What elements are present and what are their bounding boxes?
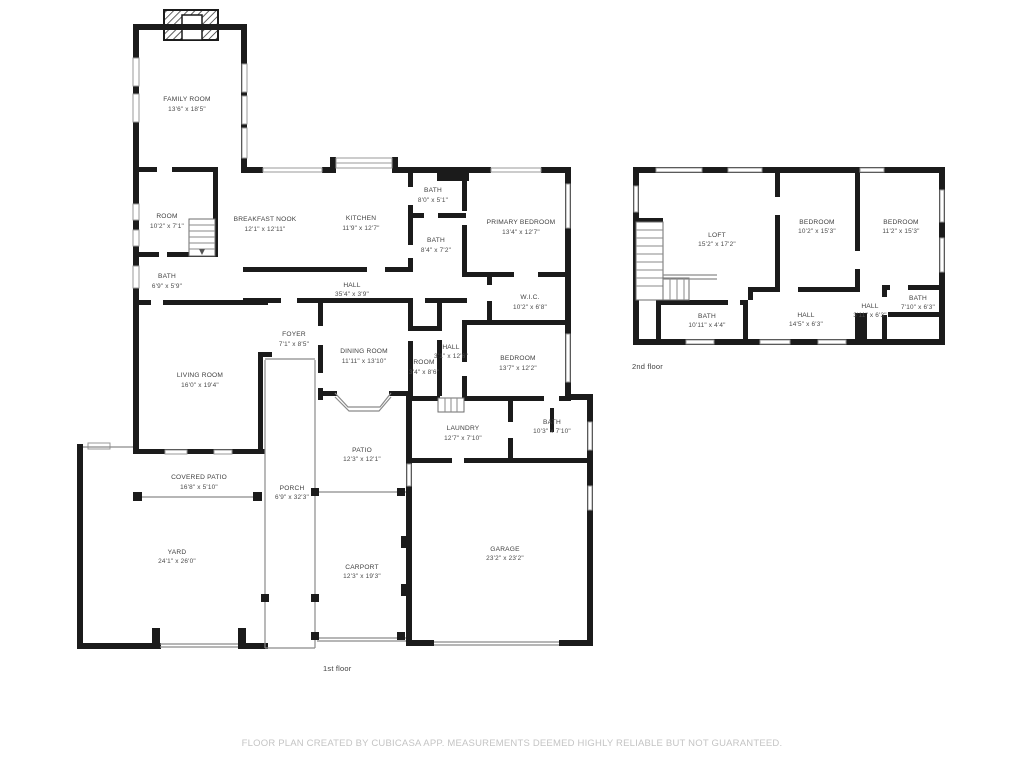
windows-second-floor	[634, 168, 944, 344]
label-bath-mid: BATH	[427, 237, 445, 244]
label-bath-top: BATH	[424, 187, 442, 194]
footer-disclaimer: FLOOR PLAN CREATED BY CUBICASA APP. MEAS…	[242, 738, 783, 749]
label-dining-room: DINING ROOM	[340, 348, 388, 355]
dims-patio: 12'3" x 12'1"	[343, 456, 381, 463]
label-family-room: FAMILY ROOM	[163, 96, 210, 103]
dims-carport: 12'3" x 19'3"	[343, 573, 381, 580]
dims-bedroom-left: 10'2" x 15'3"	[798, 228, 836, 235]
dims-laundry: 12'7" x 7'10"	[444, 435, 482, 442]
stairs-icon-second-floor	[636, 222, 717, 300]
dims-room-small: 3'4" x 8'6"	[409, 369, 439, 376]
dims-porch: 6'9" x 32'3"	[275, 494, 309, 501]
dims-bedroom-right: 11'2" x 15'3"	[882, 228, 919, 235]
floor-plan-page: FAMILY ROOM 13'6" x 18'5" ROOM 10'2" x 7…	[0, 0, 1024, 768]
dims-bath-mid: 8'4" x 7'2"	[421, 247, 451, 254]
dims-bath-right: 10'3" x 7'10"	[533, 428, 571, 435]
label-bath-right-2: BATH	[909, 295, 927, 302]
stairs-icon-first-floor	[189, 219, 215, 256]
label-garage: GARAGE	[490, 546, 520, 553]
label-kitchen: KITCHEN	[346, 215, 376, 222]
label-laundry: LAUNDRY	[447, 425, 480, 432]
dims-wic: 10'2" x 6'8"	[513, 304, 547, 311]
label-room-upper: ROOM	[156, 213, 177, 220]
label-bedroom-right: BEDROOM	[883, 219, 918, 226]
dims-primary-bedroom: 13'4" x 12'7"	[502, 229, 540, 236]
dims-dining-room: 11'11" x 13'10"	[342, 358, 386, 365]
label-hall-2: HALL	[797, 312, 814, 319]
label-wic: W.I.C.	[520, 294, 539, 301]
label-covered-patio: COVERED PATIO	[171, 474, 227, 481]
dims-hall-2: 14'5" x 6'3"	[789, 321, 823, 328]
dims-bath-top: 8'0" x 5'1"	[418, 197, 448, 204]
dims-hall: 35'4" x 3'9"	[335, 291, 369, 298]
label-hall: HALL	[343, 282, 360, 289]
label-primary-bedroom: PRIMARY BEDROOM	[487, 219, 556, 226]
label-bath-left-2: BATH	[698, 313, 716, 320]
dims-hall-small: 3'1" x 12'6"	[434, 353, 468, 360]
label-carport: CARPORT	[345, 564, 379, 571]
walls-second-floor	[633, 167, 945, 345]
dims-family-room: 13'6" x 18'5"	[168, 106, 206, 113]
label-hall-small-2: HALL	[861, 303, 878, 310]
outdoor-lines-first-floor	[83, 359, 559, 648]
dims-bath-left: 6'9" x 5'9"	[152, 283, 182, 290]
label-living-room: LIVING ROOM	[177, 372, 223, 379]
dims-bedroom: 13'7" x 12'2"	[499, 365, 537, 372]
label-foyer: FOYER	[282, 331, 306, 338]
label-bedroom: BEDROOM	[500, 355, 535, 362]
label-patio: PATIO	[352, 447, 372, 454]
dims-bath-right-2: 7'10" x 6'3"	[901, 304, 935, 311]
first-floor-caption: 1st floor	[323, 664, 352, 673]
dims-room-upper: 10'2" x 7'1"	[150, 223, 184, 230]
label-loft: LOFT	[708, 232, 726, 239]
second-floor-caption: 2nd floor	[632, 362, 663, 371]
dims-loft: 15'2" x 17'2"	[698, 241, 736, 248]
label-room-small: ROOM	[413, 359, 434, 366]
dims-covered-patio: 16'8" x 5'10"	[180, 484, 218, 491]
label-hall-small: HALL	[442, 344, 459, 351]
dims-hall-small-2: 3'11" x 6'3"	[853, 312, 886, 319]
dims-yard: 24'1" x 26'0"	[158, 558, 196, 565]
dims-foyer: 7'1" x 8'5"	[279, 341, 309, 348]
steps-icon-laundry	[438, 398, 464, 412]
floor-plan-svg: FAMILY ROOM 13'6" x 18'5" ROOM 10'2" x 7…	[0, 0, 1024, 768]
label-bath-left: BATH	[158, 273, 176, 280]
dims-breakfast-nook: 12'1" x 12'11"	[245, 226, 286, 233]
bay-window-icon	[335, 393, 391, 411]
dims-kitchen: 11'9" x 12'7"	[342, 225, 379, 232]
dims-living-room: 16'0" x 19'4"	[181, 382, 219, 389]
label-breakfast-nook: BREAKFAST NOOK	[234, 216, 297, 223]
label-porch: PORCH	[280, 485, 305, 492]
label-bath-right: BATH	[543, 419, 561, 426]
second-floor-plan: LOFT 15'2" x 17'2" BEDROOM 10'2" x 15'3"…	[632, 167, 945, 371]
label-bedroom-left: BEDROOM	[799, 219, 834, 226]
dims-garage: 23'2" x 23'2"	[486, 555, 524, 562]
label-yard: YARD	[168, 549, 187, 556]
first-floor-plan: FAMILY ROOM 13'6" x 18'5" ROOM 10'2" x 7…	[77, 10, 593, 673]
dims-bath-left-2: 10'11" x 4'4"	[688, 322, 725, 329]
